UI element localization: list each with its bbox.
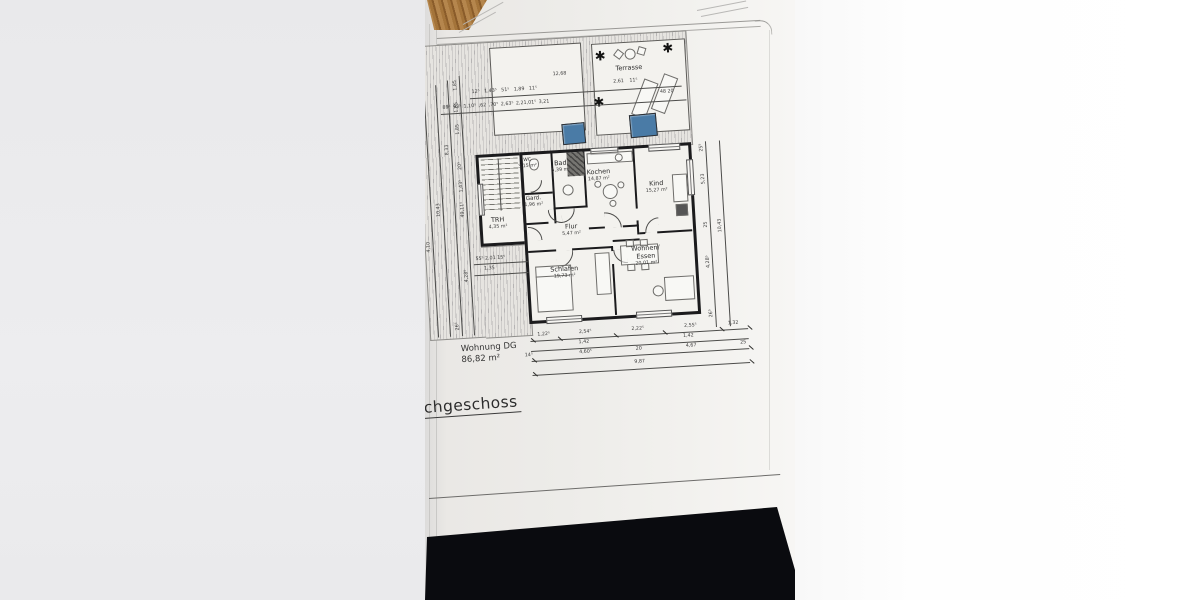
wall-segment [528, 249, 556, 253]
summary-area: 86,82 m² [461, 353, 500, 365]
photo-of-floor-plan: Terrasse ✱ ✱ ✱ TRH 4,35 m² [0, 0, 1200, 600]
side-table-icon [652, 285, 664, 297]
dim-left: 8,33 [445, 144, 451, 155]
drawing-frame-bottom [429, 474, 780, 499]
background-left [0, 0, 426, 600]
room-label-gard: Gard. 1,96 m² [524, 195, 544, 209]
dim-tick [748, 325, 753, 330]
kitchen-counter [586, 151, 633, 165]
dim-line [705, 141, 717, 327]
room-label-wc: WC 3,15 m² [518, 157, 537, 169]
dim-right: 25 [704, 221, 709, 227]
dim-bottom-row3: 20 [636, 346, 642, 351]
dim-tick [749, 345, 754, 350]
door-arc [644, 217, 659, 233]
dim-bottom-row3: 25 [740, 340, 746, 345]
plant-icon: ✱ [594, 50, 606, 64]
kitchen-table-icon [602, 184, 618, 200]
bottom-dimensions: 1,22⁵ 2,54⁵ 2,22⁵ 2,55⁵ 1,32 1,42 1,42 1… [530, 320, 751, 385]
chair-icon [609, 200, 616, 207]
floor-plan: Terrasse ✱ ✱ ✱ TRH 4,35 m² [425, 26, 787, 398]
desk-icon [672, 173, 689, 202]
apartment-summary: Wohnung DG 86,82 m² [461, 341, 518, 366]
room-label-trh: TRH 4,35 m² [488, 216, 508, 231]
kind-furniture [676, 203, 689, 216]
room-label-terrasse: Terrasse [615, 64, 642, 73]
dim-bottom-total: 9,87 [634, 359, 645, 365]
wall-segment [657, 229, 692, 233]
dim-left: 1,85 [453, 80, 459, 91]
dim-left: 1,85 [454, 102, 460, 113]
plant-icon: ✱ [593, 96, 605, 110]
dim-left: 26⁵ [455, 322, 460, 330]
room-label-kochen: Kochen 14,87 m² [586, 168, 610, 183]
dim-tick [750, 359, 755, 364]
dark-table-below-paper [425, 500, 795, 600]
wall-segment [572, 246, 613, 250]
plant-icon: ✱ [662, 42, 674, 56]
washbasin-icon [562, 184, 574, 196]
terrace-table-icon [624, 48, 636, 60]
dim-left: 1,43⁵ [459, 180, 465, 193]
dim-line [719, 140, 731, 326]
dim-right: 5,23 [701, 173, 707, 184]
skylight-icon [629, 113, 658, 138]
dim-mid-left-under: 1,35 [484, 266, 495, 272]
wall-segment [526, 222, 548, 225]
dim-left: 4,28⁵ [464, 270, 470, 283]
wall-segment [632, 149, 638, 209]
dim-left: 10,43 [436, 203, 442, 217]
terrace-chair-icon [613, 49, 624, 60]
dim-top-right-small: 48 20 [660, 89, 674, 95]
window [648, 142, 680, 151]
door-arc [528, 226, 543, 241]
window [636, 309, 672, 318]
sofa-icon [664, 275, 695, 301]
chair-icon [617, 181, 624, 188]
room-label-kind: Kind 15,27 m² [645, 180, 668, 195]
dim-right: 10,43 [718, 218, 724, 232]
door-arc [604, 211, 622, 228]
dim-bottom-row3: 4,67 [686, 343, 697, 349]
wall-segment [589, 226, 605, 229]
dim-bottom-row2: 1,42 [683, 333, 694, 339]
room-label-schlafen: Schlafen 19,73 m² [550, 265, 579, 280]
dim-right: 25⁵ [699, 143, 704, 151]
dim-right: 26⁵ [709, 309, 714, 317]
door-arc [530, 180, 543, 193]
dim-left: 20⁵ [458, 162, 463, 170]
paper-photo: Terrasse ✱ ✱ ✱ TRH 4,35 m² [425, 0, 795, 600]
dim-bottom-row2: 1,42 [578, 340, 589, 346]
wardrobe-icon [594, 252, 611, 295]
window [546, 314, 582, 323]
sink-icon [614, 153, 622, 161]
dim-left: 4,10 [426, 242, 432, 253]
dim-left: 1,85 [455, 124, 461, 135]
door-arc [561, 208, 576, 223]
wall-segment [612, 264, 617, 315]
room-label-bad: Bad 5,39 m² [551, 159, 571, 174]
room-label-wohnen: Wohnen/ Essen 20,01 m² [631, 244, 661, 267]
dim-bottom-row3: 4,60⁵ [579, 349, 592, 355]
dim-left: 49,11⁵ [460, 202, 466, 218]
background-right [794, 0, 1200, 600]
skylight-icon [561, 122, 586, 145]
dim-top-total: 12,68 [553, 71, 567, 77]
terrace-chair-icon [636, 46, 646, 56]
dim-right: 4,28⁵ [706, 255, 712, 268]
room-label-flur: Flur 5,47 m² [562, 223, 582, 238]
